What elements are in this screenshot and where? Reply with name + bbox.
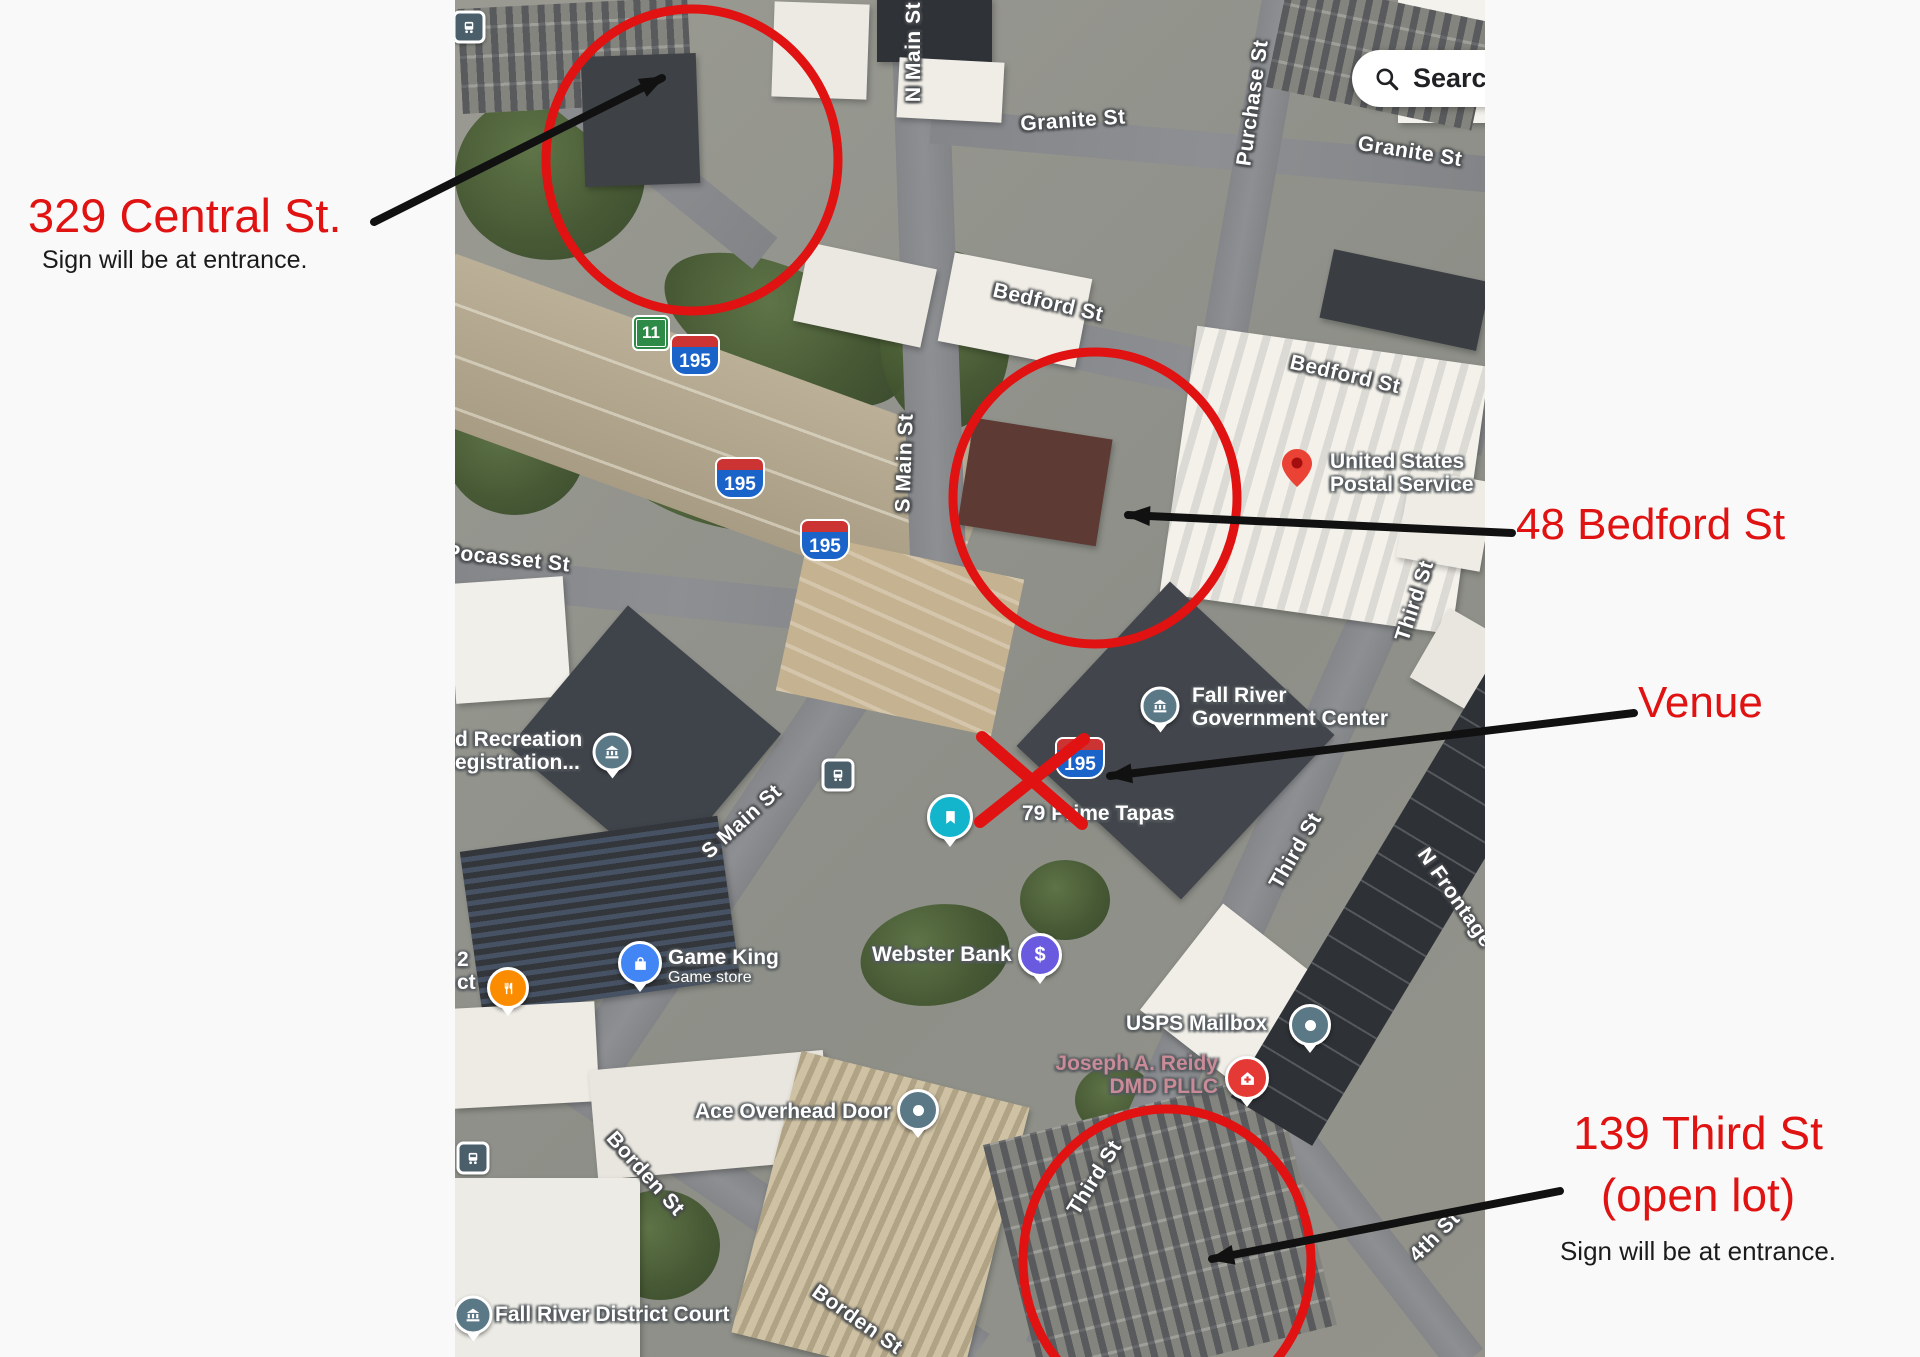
dollar-icon: $ (1034, 944, 1045, 967)
route-shield-195: 195 (715, 457, 765, 499)
usps-map-pin[interactable] (1282, 448, 1312, 490)
annotation-third-subtitle: Sign will be at entrance. (1528, 1236, 1868, 1267)
poi-label-government-center[interactable]: Fall RiverGovernment Center (1192, 684, 1388, 730)
annotation-third-title2: (open lot) (1528, 1168, 1868, 1222)
restaurant-pin[interactable] (487, 967, 529, 1009)
annotation-third-block: 139 Third St (open lot) Sign will be at … (1528, 1106, 1868, 1267)
poi-label-recreation[interactable]: d Recreationegistration... (455, 728, 582, 774)
route-shield-11: 11 (632, 315, 670, 351)
dot-icon (913, 1105, 924, 1116)
route-shield-195: 195 (800, 519, 850, 561)
recreation-pin[interactable] (593, 733, 632, 772)
search-box[interactable]: Search (1352, 50, 1485, 107)
poi-label-usps-mailbox[interactable]: USPS Mailbox (1126, 1012, 1267, 1035)
usps-mailbox-pin[interactable] (1289, 1004, 1331, 1046)
poi-label-reidy[interactable]: Joseph A. ReidyDMD PLLC (1053, 1052, 1218, 1098)
government-building-icon (1152, 698, 1169, 715)
game-king-pin[interactable] (618, 941, 662, 985)
annotation-venue-title: Venue (1638, 678, 1763, 728)
fork-knife-icon (501, 981, 516, 996)
building (1319, 249, 1485, 351)
dot-icon (1305, 1020, 1316, 1031)
poi-label-ace[interactable]: Ace Overhead Door (695, 1100, 891, 1123)
route-shield-195: 195 (670, 334, 720, 376)
poi-label-usps[interactable]: United StatesPostal Service (1330, 450, 1474, 496)
building-brick (957, 418, 1112, 547)
trees (1020, 860, 1110, 940)
transit-station-icon[interactable] (822, 759, 855, 792)
bus-icon (466, 1151, 481, 1166)
route-shield-195: 195 (1055, 737, 1105, 779)
poi-label-game-king[interactable]: Game KingGame store (668, 946, 779, 987)
annotation-bedford-title: 48 Bedford St (1516, 500, 1785, 550)
bus-icon (462, 20, 477, 35)
transit-station-icon[interactable] (455, 11, 486, 44)
bookmark-icon (942, 809, 959, 826)
annotation-third-title: 139 Third St (1528, 1106, 1868, 1160)
bus-icon (831, 768, 846, 783)
search-text: Search (1413, 63, 1485, 94)
government-building-icon (604, 744, 621, 761)
satellite-map[interactable]: N Main St Granite St Purchase St Granite… (455, 0, 1485, 1357)
ace-pin[interactable] (897, 1089, 939, 1131)
poi-label-webster-bank[interactable]: Webster Bank (872, 943, 1012, 966)
magnifier-icon (1374, 66, 1400, 92)
annotation-central-subtitle: Sign will be at entrance. (42, 246, 307, 275)
medical-house-icon (1239, 1070, 1256, 1087)
building (581, 53, 700, 187)
poi-label-cut: 2ct (457, 948, 476, 994)
building (455, 576, 571, 704)
building (455, 1001, 600, 1108)
prime-tapas-pin[interactable] (927, 794, 973, 840)
annotation-central-title: 329 Central St. (28, 188, 342, 243)
flyer-canvas: N Main St Granite St Purchase St Granite… (0, 0, 1920, 1357)
street-label: 4th St (1405, 1207, 1465, 1267)
street-label: S Main St (891, 413, 918, 513)
shopping-bag-icon (632, 955, 649, 972)
building (771, 1, 869, 99)
district-court-pin[interactable] (455, 1296, 493, 1335)
building (877, 0, 992, 62)
poi-label-prime-tapas[interactable]: 79 Prime Tapas (1022, 802, 1175, 825)
government-center-pin[interactable] (1141, 687, 1180, 726)
transit-station-icon[interactable] (457, 1142, 490, 1175)
webster-bank-pin[interactable]: $ (1018, 933, 1062, 977)
poi-label-district-court[interactable]: Fall River District Court (495, 1303, 730, 1326)
street-label: N Main St (902, 2, 926, 102)
government-building-icon (465, 1307, 482, 1324)
reidy-medical-pin[interactable] (1225, 1056, 1269, 1100)
